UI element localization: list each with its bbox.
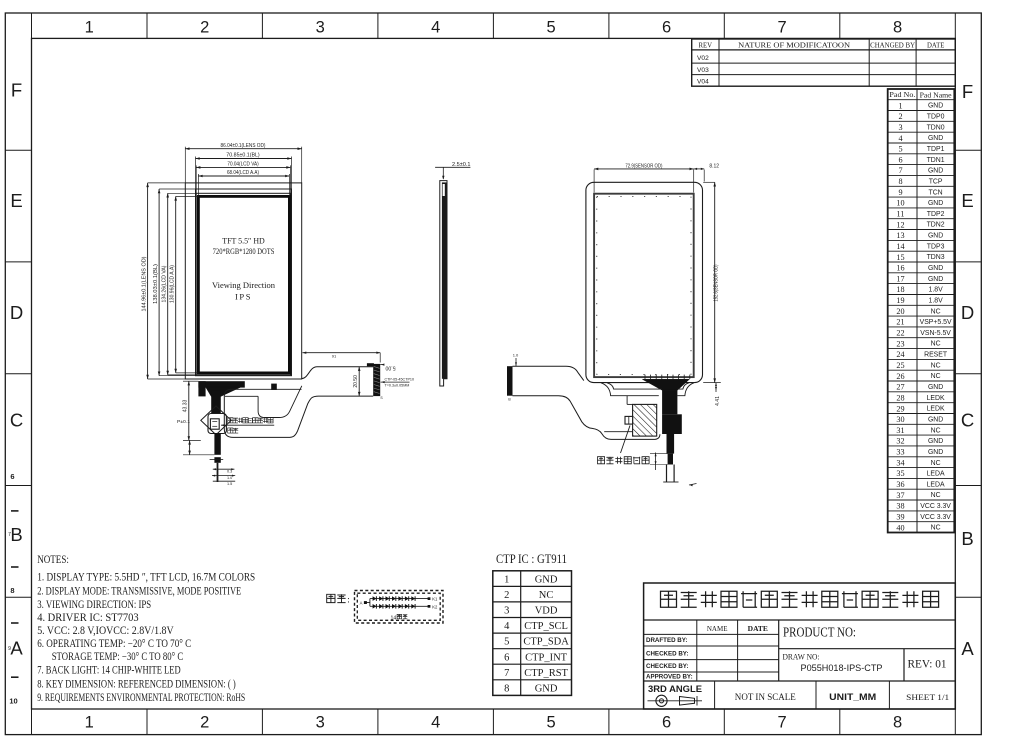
svg-text:DATE: DATE (927, 43, 944, 50)
svg-text:7: 7 (898, 166, 902, 175)
svg-text:2: 2 (898, 112, 902, 121)
svg-text:86.04±0.1(LENS OD): 86.04±0.1(LENS OD) (221, 143, 266, 149)
svg-text:36: 36 (896, 480, 904, 489)
svg-text:1.0: 1.0 (227, 476, 232, 480)
svg-text:10: 10 (896, 199, 904, 208)
svg-text:4: 4 (431, 714, 440, 732)
svg-text:9. REQUIREMENTS ENVIRONMENTAL: 9. REQUIREMENTS ENVIRONMENTAL PROTECTION… (37, 692, 245, 704)
svg-text:0.3: 0.3 (227, 470, 232, 474)
svg-text:7: 7 (8, 532, 11, 538)
svg-text:5: 5 (547, 19, 556, 37)
svg-text:B: B (10, 524, 22, 545)
svg-text:30: 30 (896, 415, 904, 424)
svg-text:B: B (961, 528, 973, 549)
svg-text:Pad Name: Pad Name (920, 92, 952, 100)
svg-text:24: 24 (896, 350, 904, 359)
svg-text:TDN2: TDN2 (927, 222, 945, 229)
svg-text:4: 4 (431, 19, 440, 37)
svg-text:2. DISPLAY MODE: TRANSMISSIVE: 2. DISPLAY MODE: TRANSMISSIVE, MODE POSI… (37, 586, 241, 598)
svg-text:LEDK: LEDK (927, 395, 945, 402)
svg-text:21: 21 (896, 318, 904, 327)
svg-text:8: 8 (893, 714, 902, 732)
svg-text:D: D (961, 302, 974, 323)
svg-text:1: 1 (504, 574, 509, 585)
svg-text:V04: V04 (697, 78, 709, 85)
svg-text:14: 14 (391, 615, 397, 621)
svg-text:TDP0: TDP0 (927, 114, 945, 121)
svg-text:17: 17 (896, 274, 904, 283)
svg-text:1.8V: 1.8V (929, 287, 944, 294)
svg-text:LEDA: LEDA (927, 481, 945, 488)
svg-text:1.8V: 1.8V (929, 298, 944, 305)
svg-text:CHANGED BY: CHANGED BY (870, 43, 915, 50)
svg-text:8. KEY DIMENSION: REFERENCED D: 8. KEY DIMENSION: REFERENCED DIMENSION: … (37, 678, 236, 690)
svg-text:TCN: TCN (929, 189, 943, 196)
svg-text:91: 91 (332, 353, 337, 358)
svg-text:TCP: TCP (929, 178, 943, 185)
svg-text:NAME: NAME (707, 625, 728, 633)
svg-text:5. VCC: 2.8 V,IOVCC: 2.8V/1.8V: 5. VCC: 2.8 V,IOVCC: 2.8V/1.8V (37, 625, 174, 637)
svg-text:CTP IC : GT911: CTP IC : GT911 (496, 552, 567, 566)
svg-text:NC: NC (931, 492, 941, 499)
svg-text:5: 5 (547, 714, 556, 732)
svg-text:6: 6 (898, 155, 902, 164)
svg-text:28: 28 (896, 393, 904, 402)
svg-text:3: 3 (316, 714, 325, 732)
svg-text:C: C (961, 410, 974, 431)
svg-text:RESET: RESET (924, 352, 948, 359)
svg-text:14: 14 (896, 242, 904, 251)
svg-text:CTP-05-45CTP10: CTP-05-45CTP10 (385, 378, 415, 382)
svg-text:VCC 3.3V: VCC 3.3V (920, 503, 951, 510)
svg-text:GND: GND (928, 200, 943, 207)
svg-text:2: 2 (504, 590, 509, 601)
svg-text:GND: GND (928, 417, 943, 424)
svg-text:CTP_SDA: CTP_SDA (523, 637, 569, 648)
svg-text:6. OPERATING TEMP: −20° C TO 7: 6. OPERATING TEMP: −20° C TO 70° C (37, 638, 191, 650)
svg-text:PRODUCT NO:: PRODUCT NO: (783, 625, 856, 640)
svg-text:35: 35 (896, 469, 904, 478)
svg-text:GND: GND (928, 168, 943, 175)
svg-text:NC: NC (931, 341, 941, 348)
svg-text:22: 22 (896, 329, 904, 338)
svg-text:STORAGE TEMP: −30° C TO 80° C: STORAGE TEMP: −30° C TO 80° C (52, 651, 184, 663)
svg-text:TDP1: TDP1 (927, 146, 945, 153)
svg-text:GND: GND (928, 265, 943, 272)
svg-text:GND: GND (535, 683, 558, 694)
svg-text:LEDK: LEDK (927, 406, 945, 413)
svg-text:20.50: 20.50 (353, 375, 359, 388)
svg-text:NC: NC (931, 362, 941, 369)
svg-text:1.5: 1.5 (227, 482, 232, 486)
svg-text:NOT IN SCALE: NOT IN SCALE (735, 692, 796, 702)
svg-text:3: 3 (898, 123, 902, 132)
svg-text:4: 4 (898, 134, 902, 143)
svg-text:6: 6 (662, 714, 671, 732)
svg-text:CTP_SCL: CTP_SCL (524, 621, 568, 632)
svg-text:P±0.1: P±0.1 (177, 419, 191, 424)
svg-text:6: 6 (10, 472, 14, 481)
svg-text:NC: NC (931, 427, 941, 434)
svg-text:5: 5 (898, 145, 902, 154)
svg-text:DATE: DATE (748, 624, 768, 633)
svg-text:TFT 5.5″ HD: TFT 5.5″ HD (222, 236, 265, 245)
svg-text:15: 15 (896, 253, 904, 262)
svg-text:DRAW NO:: DRAW NO: (783, 651, 820, 661)
svg-text:VDD: VDD (535, 606, 558, 617)
svg-text:23: 23 (896, 339, 904, 348)
svg-text:K1: K1 (432, 597, 438, 602)
svg-text:GND: GND (928, 449, 943, 456)
svg-text:32: 32 (896, 437, 904, 446)
svg-text:TDP3: TDP3 (927, 243, 945, 250)
svg-text:NC: NC (539, 590, 554, 601)
svg-text:2.5±0.1: 2.5±0.1 (452, 162, 471, 168)
svg-text:GND: GND (928, 135, 943, 142)
svg-text:25: 25 (896, 361, 904, 370)
svg-text:29: 29 (896, 404, 904, 413)
svg-text:TDN3: TDN3 (927, 254, 945, 261)
svg-text:GND: GND (535, 574, 558, 585)
svg-text:A: A (961, 638, 974, 659)
svg-text:IPS: IPS (235, 292, 252, 302)
svg-text:3: 3 (504, 606, 509, 617)
svg-text:Viewing Direction: Viewing Direction (212, 281, 275, 290)
svg-text:CTP_INT: CTP_INT (525, 652, 568, 663)
svg-text:TDN1: TDN1 (927, 157, 945, 164)
svg-text:9: 9 (898, 188, 902, 197)
svg-text:REV: 01: REV: 01 (908, 658, 947, 670)
svg-text:NC: NC (931, 460, 941, 467)
svg-text:1.0: 1.0 (513, 353, 519, 358)
svg-text:130.96(LCD A.A): 130.96(LCD A.A) (170, 265, 176, 303)
svg-text:70.85±0.1(BL): 70.85±0.1(BL) (226, 153, 260, 159)
svg-text:26: 26 (896, 372, 904, 381)
svg-text:8: 8 (504, 683, 509, 694)
svg-text:7. BACK LIGHT: 14 CHIP-WHITE L: 7. BACK LIGHT: 14 CHIP-WHITE LED (37, 665, 181, 677)
svg-text:720*RGB*1280 DOTS: 720*RGB*1280 DOTS (213, 247, 275, 256)
svg-text:6: 6 (504, 652, 509, 663)
svg-text:20: 20 (896, 307, 904, 316)
svg-text:Pad No.: Pad No. (889, 91, 915, 99)
svg-text:A: A (360, 601, 363, 606)
svg-text:1: 1 (898, 101, 902, 110)
svg-text:GND: GND (928, 276, 943, 283)
svg-text:39: 39 (896, 513, 904, 522)
svg-text:F: F (11, 80, 22, 101)
svg-text:V03: V03 (697, 67, 709, 74)
svg-text:C: C (10, 410, 23, 431)
svg-text:31: 31 (896, 426, 904, 435)
svg-text:VSN-5.5V: VSN-5.5V (920, 330, 951, 337)
svg-text:LEDA: LEDA (927, 471, 945, 478)
svg-text:S: S (380, 396, 383, 400)
svg-text:T=0.3±0.05MM: T=0.3±0.05MM (385, 383, 410, 387)
svg-text:CHECKED BY:: CHECKED BY: (646, 650, 689, 657)
svg-text:B: B (508, 398, 511, 402)
svg-text:A: A (10, 638, 23, 659)
svg-text:GND: GND (928, 103, 943, 110)
svg-text:37: 37 (896, 491, 904, 500)
svg-text:33: 33 (896, 448, 904, 457)
svg-text:8: 8 (10, 586, 14, 595)
svg-text:NC: NC (931, 525, 941, 532)
svg-text:13: 13 (896, 231, 904, 240)
svg-text:7: 7 (778, 714, 787, 732)
svg-text:2: 2 (200, 19, 209, 37)
svg-text:19: 19 (896, 296, 904, 305)
svg-text:NATURE OF MODIFICATOON: NATURE OF MODIFICATOON (738, 43, 850, 50)
svg-text:16: 16 (896, 264, 904, 273)
svg-text:11: 11 (897, 210, 905, 219)
svg-text:5: 5 (504, 637, 509, 648)
svg-text:NC: NC (931, 308, 941, 315)
svg-text:3: 3 (316, 19, 325, 37)
svg-text:3. VIEWING DIRECTION: IPS: 3. VIEWING DIRECTION: IPS (37, 599, 151, 611)
svg-text:3RD ANGLE: 3RD ANGLE (648, 684, 702, 694)
svg-text:40: 40 (896, 523, 904, 532)
svg-text:TDP2: TDP2 (927, 211, 945, 218)
svg-text:1: 1 (85, 19, 94, 37)
svg-text:72.9(SENSOR OD): 72.9(SENSOR OD) (625, 163, 662, 169)
svg-text:1: 1 (85, 714, 94, 732)
svg-text:4.41: 4.41 (715, 396, 721, 406)
svg-text:DRAFTED BY:: DRAFTED BY: (646, 637, 687, 644)
svg-text:68.04(LCD A.A): 68.04(LCD A.A) (227, 170, 259, 176)
svg-text:REV: REV (698, 43, 712, 50)
svg-text:4: 4 (504, 621, 510, 632)
svg-text:18: 18 (896, 285, 904, 294)
svg-text:38: 38 (896, 502, 904, 511)
svg-text:V02: V02 (697, 55, 709, 62)
svg-text:P055H018-IPS-CTP: P055H018-IPS-CTP (801, 663, 883, 673)
svg-text:138.03±0.1(BL): 138.03±0.1(BL) (153, 264, 159, 304)
svg-text:UNIT_MM: UNIT_MM (829, 692, 876, 702)
svg-text:134.26(LCD VA): 134.26(LCD VA) (162, 265, 168, 302)
svg-text:APPROVED BY:: APPROVED BY: (646, 674, 693, 681)
svg-text:5.00: 5.00 (385, 365, 395, 371)
svg-text:7: 7 (778, 19, 787, 37)
svg-text:E: E (961, 190, 973, 211)
svg-text:F: F (962, 81, 973, 102)
svg-text:GND: GND (928, 233, 943, 240)
svg-text:27: 27 (896, 383, 904, 392)
svg-text:10: 10 (9, 696, 17, 705)
svg-text:E: E (10, 190, 22, 211)
svg-text:CHECKED BY:: CHECKED BY: (646, 663, 689, 670)
svg-text:152.6(SENSOR OD): 152.6(SENSOR OD) (714, 264, 720, 301)
svg-text:7: 7 (504, 668, 509, 679)
svg-text:8.12: 8.12 (709, 163, 719, 169)
svg-text:43.33: 43.33 (182, 400, 188, 413)
svg-text:GND: GND (928, 384, 943, 391)
svg-text::: : (347, 595, 350, 605)
svg-text:144.96±0.1(LENS OD): 144.96±0.1(LENS OD) (141, 256, 147, 311)
svg-text:VSP+5.5V: VSP+5.5V (920, 319, 952, 326)
svg-text:34: 34 (896, 458, 904, 467)
svg-text:1. DISPLAY TYPE: 5.5HD ″, TFT: 1. DISPLAY TYPE: 5.5HD ″, TFT LCD, 16.7M… (37, 572, 255, 584)
svg-text:CTP_RST: CTP_RST (524, 668, 568, 679)
svg-text:NOTES:: NOTES: (37, 554, 69, 566)
svg-text:8: 8 (893, 19, 902, 37)
svg-text:VCC 3.3V: VCC 3.3V (920, 514, 951, 521)
svg-text:6: 6 (662, 19, 671, 37)
svg-text:K2: K2 (432, 604, 438, 609)
svg-text:12: 12 (896, 220, 904, 229)
svg-text:9: 9 (8, 646, 11, 652)
svg-text:NC: NC (931, 373, 941, 380)
svg-text:70.04(LCD VA): 70.04(LCD VA) (227, 162, 259, 168)
svg-text:8: 8 (898, 177, 902, 186)
svg-text:SHEET 1/1: SHEET 1/1 (906, 692, 949, 702)
svg-text:D: D (10, 302, 23, 323)
svg-text:GND: GND (928, 438, 943, 445)
svg-text:TDN0: TDN0 (927, 124, 945, 131)
svg-text:4. DRIVER IC: ST7703: 4. DRIVER IC: ST7703 (37, 612, 139, 624)
svg-text:2: 2 (200, 714, 209, 732)
